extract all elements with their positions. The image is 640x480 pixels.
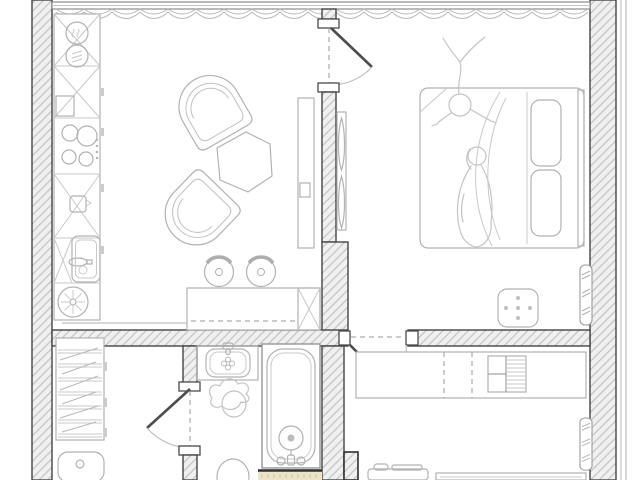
bar-stool-right xyxy=(247,257,276,287)
bar-stool-left xyxy=(205,257,234,287)
dressing-room xyxy=(56,338,107,480)
bathroom-hallway-wall xyxy=(322,346,344,480)
kitchen-counter-outline xyxy=(54,14,100,320)
laundry-basket xyxy=(58,452,104,480)
wall-wardrobe-strip xyxy=(337,112,346,230)
ottoman-pouf xyxy=(498,289,538,327)
hallway-radiator xyxy=(580,418,592,470)
entry-bench xyxy=(436,473,586,480)
wall-stub-top xyxy=(322,9,336,19)
door-jamb xyxy=(318,83,339,92)
bedroom-radiator xyxy=(580,265,592,325)
built-in-wardrobe xyxy=(356,352,586,398)
wall-right-segment xyxy=(408,330,590,346)
bathtub xyxy=(262,344,320,468)
door-jamb xyxy=(406,331,418,345)
door-jamb xyxy=(318,19,339,28)
double-bed xyxy=(420,88,584,248)
door-jamb xyxy=(179,446,200,455)
kitchen-cabinet-run xyxy=(54,14,104,320)
floor-plan xyxy=(0,0,640,480)
partition-wall xyxy=(322,92,336,242)
right-exterior-wall xyxy=(590,0,616,480)
tv-console xyxy=(298,98,314,248)
left-exterior-wall xyxy=(32,0,52,480)
bathroom-left-wall-lower xyxy=(183,455,197,480)
door-jamb xyxy=(339,331,350,345)
shelving-wardrobe xyxy=(56,338,107,440)
bar-counter xyxy=(187,288,320,330)
partition-wall-thick xyxy=(322,242,348,332)
bathroom-left-wall-upper xyxy=(183,346,197,384)
floor-mat xyxy=(258,471,322,480)
floor-plan-canvas xyxy=(0,0,640,480)
hallway-corner-wall xyxy=(344,452,358,480)
